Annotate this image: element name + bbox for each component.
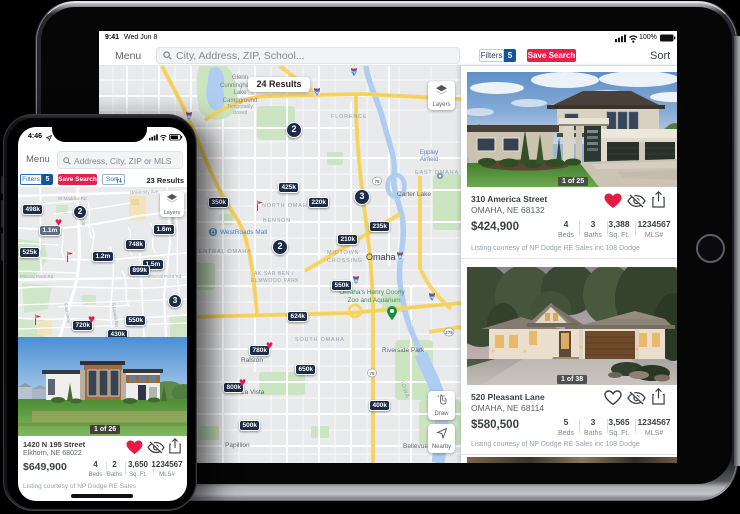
svg-text:La Vista: La Vista [241, 389, 265, 396]
svg-text:29: 29 [429, 295, 435, 300]
svg-text:AK SAR BEN /: AK SAR BEN / [254, 271, 294, 277]
svg-text:SOUTH OMAHA: SOUTH OMAHA [295, 337, 345, 343]
svg-text:Riverside Park: Riverside Park [382, 347, 425, 354]
svg-text:Zoo and Aquarium: Zoo and Aquarium [347, 297, 400, 304]
svg-text:FLORENCE: FLORENCE [331, 114, 367, 120]
svg-text:Lake: Lake [233, 90, 247, 96]
svg-text:Omaha: Omaha [366, 252, 396, 262]
svg-text:NORTH OMAHA: NORTH OMAHA [262, 203, 312, 209]
svg-text:275: 275 [445, 330, 453, 335]
svg-text:Papillion: Papillion [225, 442, 250, 449]
svg-text:75: 75 [374, 179, 380, 184]
svg-text:CROSSING: CROSSING [327, 258, 363, 264]
svg-text:closed: closed [233, 110, 248, 116]
svg-text:680: 680 [185, 114, 193, 119]
svg-text:Carter Lake: Carter Lake [397, 191, 431, 198]
svg-text:BENSON: BENSON [263, 218, 291, 224]
svg-text:680: 680 [352, 278, 360, 283]
svg-text:CENTRAL OMAHA: CENTRAL OMAHA [194, 249, 252, 255]
svg-text:Eppley: Eppley [420, 150, 438, 156]
svg-text:Bellevue: Bellevue [403, 443, 428, 450]
svg-text:University Ave: University Ave [130, 189, 159, 195]
svg-text:Glenn: Glenn [232, 75, 248, 81]
svg-text:75: 75 [351, 70, 357, 75]
svg-text:ELMWOOD PARK: ELMWOOD PARK [251, 278, 299, 284]
svg-text:480: 480 [396, 254, 404, 259]
svg-text:Ralston: Ralston [241, 357, 263, 364]
svg-text:29: 29 [314, 90, 320, 95]
svg-text:W Maddox Rd: W Maddox Rd [58, 196, 87, 201]
svg-text:WestRoads Mall: WestRoads Mall [220, 229, 268, 236]
svg-text:MIDTOWN: MIDTOWN [327, 250, 359, 256]
svg-text:Airfield: Airfield [420, 157, 438, 163]
svg-text:Mineral Point Rd: Mineral Point Rd [20, 274, 54, 279]
svg-text:75: 75 [369, 371, 375, 376]
svg-text:Mineral Point Rd: Mineral Point Rd [148, 274, 182, 279]
